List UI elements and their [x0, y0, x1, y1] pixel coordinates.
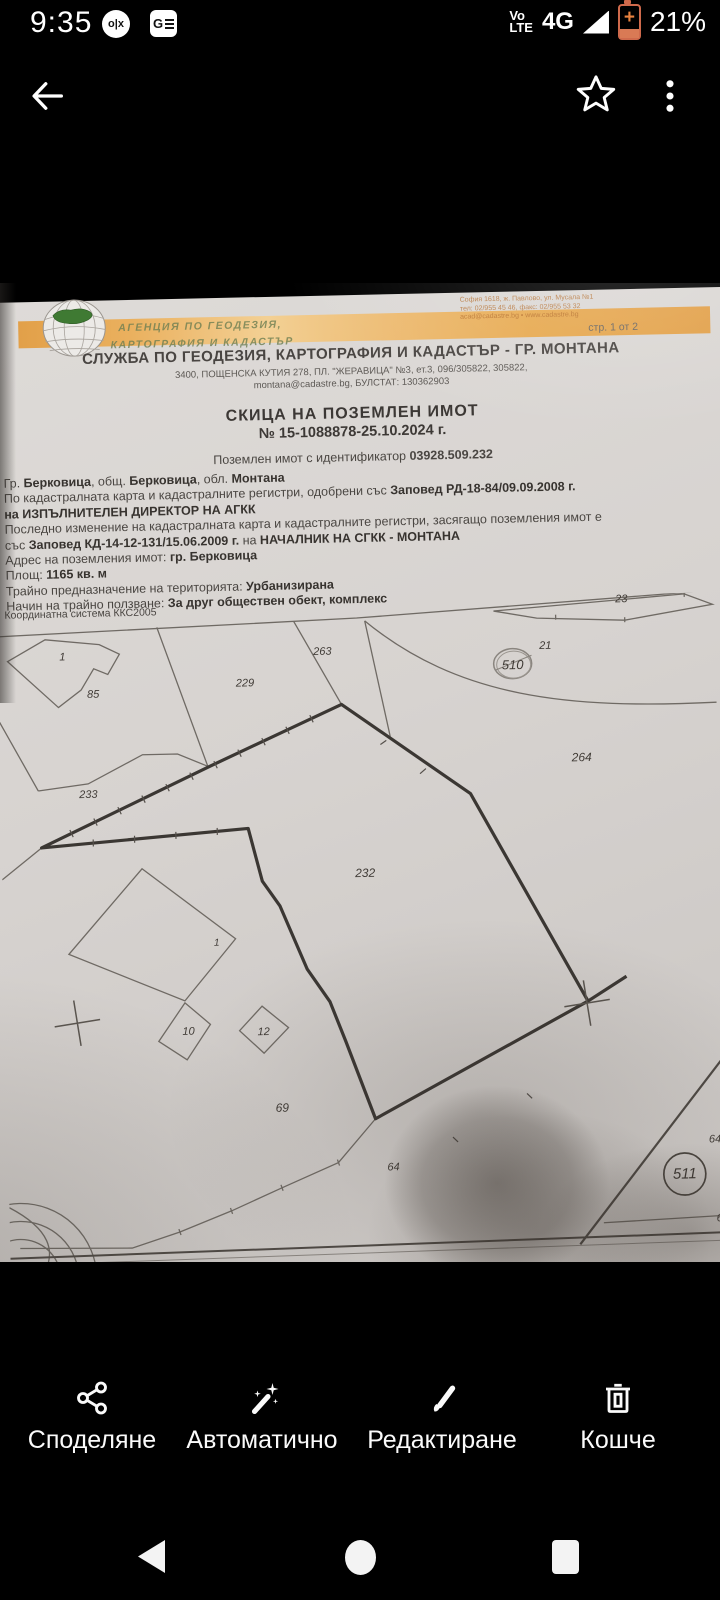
nav-home-button[interactable] — [345, 1540, 376, 1575]
clock: 9:35 — [30, 6, 92, 40]
trash-icon — [600, 1380, 636, 1416]
map-parcel-label: 1 — [59, 651, 65, 663]
trash-button[interactable]: Кошче — [528, 1380, 708, 1455]
share-button[interactable]: Споделяне — [2, 1380, 182, 1455]
map-labels-layer: 1852632292321510264233232110126964645511… — [0, 283, 720, 1262]
map-parcel-label: 263 — [313, 646, 332, 658]
map-parcel-label: 1 — [214, 938, 220, 949]
map-parcel-label: 64 — [387, 1161, 400, 1173]
auto-enhance-button[interactable]: Автоматично — [172, 1380, 352, 1455]
map-parcel-label: 645 — [709, 1133, 720, 1145]
news-lines-glyph — [165, 17, 174, 31]
signal-strength-icon — [583, 11, 609, 34]
olx-notification-icon: o|x — [102, 10, 130, 38]
photo-view[interactable]: АГЕНЦИЯ ПО ГЕОДЕЗИЯ, КАРТОГРАФИЯ И КАДАС… — [0, 283, 720, 1262]
map-parcel-label: 12 — [257, 1026, 270, 1038]
back-arrow-icon — [28, 76, 68, 116]
map-parcel-label: 10 — [182, 1026, 195, 1038]
android-screen: 9:35 o|x G Vo LTE 4G + 21% — [0, 0, 720, 1600]
star-icon — [574, 72, 618, 116]
map-parcel-label: 64 — [717, 1212, 720, 1224]
magic-wand-icon — [244, 1380, 280, 1416]
app-bar — [0, 60, 720, 140]
map-parcel-label: 21 — [539, 640, 552, 652]
battery-icon: + — [618, 4, 641, 40]
map-parcel-label: 264 — [572, 750, 592, 764]
share-icon — [74, 1380, 110, 1416]
map-parcel-label: 232 — [355, 866, 375, 880]
navigation-bar — [0, 1500, 720, 1600]
map-parcel-label: 23 — [615, 593, 628, 605]
map-parcel-label: 85 — [87, 689, 100, 701]
google-news-notification-icon: G — [150, 10, 177, 37]
map-parcel-label: 233 — [79, 789, 98, 801]
nav-recents-button[interactable] — [552, 1540, 579, 1574]
map-parcel-label: 510 — [502, 657, 524, 672]
nav-back-button[interactable] — [138, 1540, 165, 1573]
photo-action-bar: Споделяне Автоматично Редактиране — [0, 1262, 720, 1500]
network-type: 4G — [542, 8, 574, 36]
edit-button[interactable]: Редактиране — [352, 1380, 532, 1455]
favorite-button[interactable] — [572, 70, 620, 118]
map-parcel-label: 511 — [673, 1165, 697, 1183]
back-button[interactable] — [24, 72, 72, 120]
three-dot-menu-icon — [650, 76, 690, 116]
more-options-button[interactable] — [646, 72, 694, 120]
map-parcel-label: 69 — [275, 1101, 289, 1115]
volte-icon: Vo LTE — [509, 10, 533, 34]
status-bar: 9:35 o|x G Vo LTE 4G + 21% — [0, 0, 720, 48]
map-parcel-label: 229 — [236, 677, 255, 689]
edit-pen-icon — [424, 1380, 460, 1416]
battery-percent: 21% — [650, 6, 706, 38]
